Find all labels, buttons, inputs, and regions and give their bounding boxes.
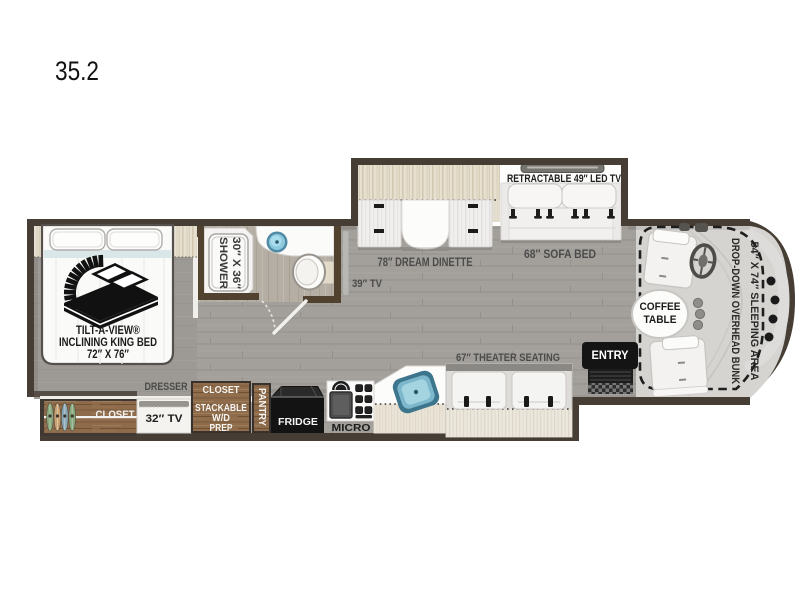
svg-text:CLOSET: CLOSET — [203, 385, 240, 396]
svg-text:35.2: 35.2 — [55, 56, 99, 86]
svg-text:TILT-A-VIEW®: TILT-A-VIEW® — [76, 325, 140, 337]
svg-text:32″ TV: 32″ TV — [146, 413, 184, 425]
svg-text:CLOSET: CLOSET — [96, 409, 135, 421]
svg-text:PREP: PREP — [210, 423, 233, 434]
svg-text:54″ X 74″ SLEEPING AREA: 54″ X 74″ SLEEPING AREA — [748, 242, 760, 381]
svg-text:39″ TV: 39″ TV — [352, 278, 383, 290]
svg-text:67″ THEATER SEATING: 67″ THEATER SEATING — [456, 352, 560, 364]
svg-text:78″ DREAM DINETTE: 78″ DREAM DINETTE — [378, 255, 473, 269]
svg-text:TABLE: TABLE — [644, 314, 677, 326]
svg-text:SHOWER: SHOWER — [217, 237, 229, 289]
svg-text:68″ SOFA BED: 68″ SOFA BED — [524, 247, 596, 261]
svg-text:FRIDGE: FRIDGE — [278, 416, 318, 428]
svg-text:DRESSER: DRESSER — [145, 381, 188, 393]
svg-text:30″ X 36″: 30″ X 36″ — [230, 237, 242, 290]
svg-text:ENTRY: ENTRY — [592, 350, 629, 362]
svg-text:INCLINING KING BED: INCLINING KING BED — [59, 337, 157, 349]
svg-text:MICRO: MICRO — [332, 422, 371, 434]
svg-text:COFFEE: COFFEE — [640, 301, 681, 313]
svg-text:72″ X 76″: 72″ X 76″ — [87, 349, 129, 361]
svg-text:DROP-DOWN OVERHEAD BUNK: DROP-DOWN OVERHEAD BUNK — [729, 238, 741, 384]
svg-text:PANTRY: PANTRY — [256, 388, 267, 426]
